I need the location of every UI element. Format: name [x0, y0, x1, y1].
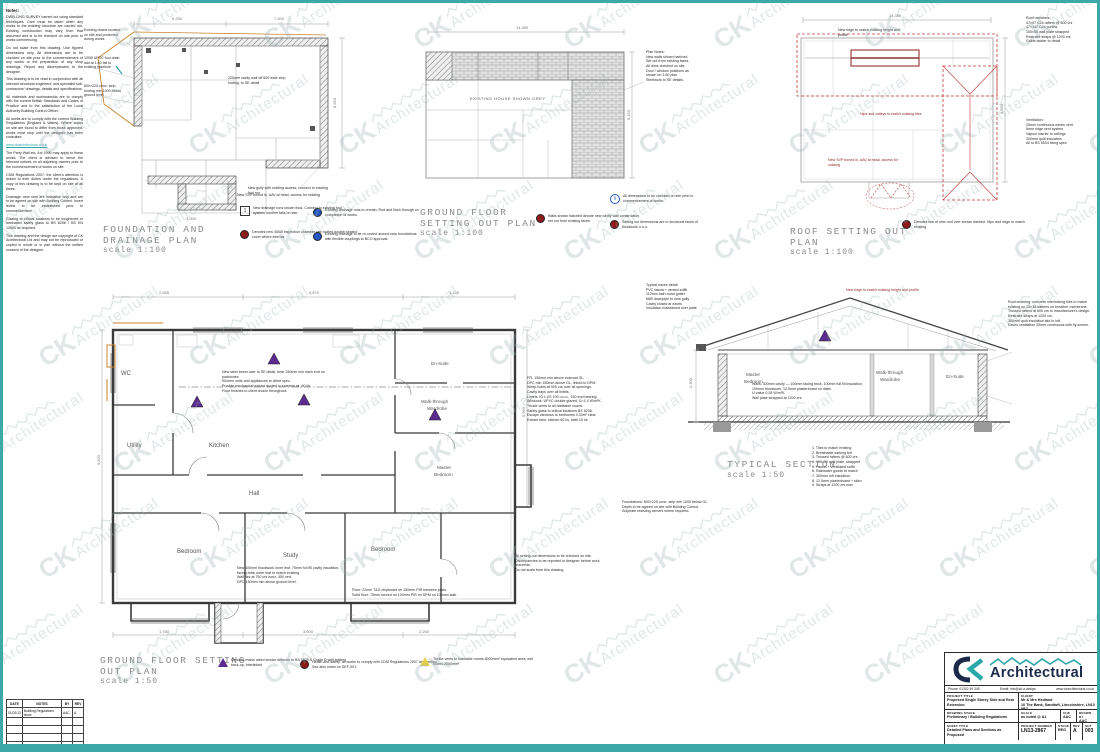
- sheet-title-cell: SHEET TITLE Detailed Plans and Sections …: [945, 723, 1019, 740]
- red-dot-icon: [902, 220, 911, 229]
- legend-existing-drainage: Existing drainage runs to remain. Rod an…: [313, 208, 421, 217]
- roof-plan-title: ROOF SETTING OUT PLAN: [790, 226, 907, 249]
- dim-label: 1,780: [159, 629, 170, 634]
- brand-name: Architectural: [990, 666, 1083, 681]
- legend-text: Trickle vents to habitable rooms 8000mm²…: [433, 657, 541, 666]
- ck-logo-icon: [950, 656, 986, 683]
- rev-rev: A: [73, 708, 84, 718]
- gf50-annotation: New steel beam over to SE detail, bear 1…: [222, 370, 334, 393]
- notes-heading: Notes:: [6, 8, 83, 13]
- legend-text: Denotes line of new roof over shown dash…: [914, 220, 1026, 229]
- red-dot-icon: [240, 230, 249, 239]
- room-label-master: Master: [437, 465, 452, 470]
- room-label-study: Study: [283, 553, 298, 559]
- section-title: TYPICAL SECTION: [727, 459, 837, 470]
- project-number-cell: PROJECT NUMBER LN13-2867: [1019, 723, 1056, 740]
- gf100-center-label: EXISTING HOUSE SHOWN GREY: [470, 96, 545, 101]
- dim-label: 8,550: [332, 97, 337, 108]
- number-stage-rev-sht-cells: PROJECT NUMBER LN13-2867 STAGE REG REV A…: [1019, 723, 1097, 740]
- watermark: CKArchitectural: [784, 487, 912, 583]
- revision-row-empty: [7, 718, 84, 726]
- room-label-bedroom1: Bedroom: [177, 549, 201, 555]
- revision-table: DATE NOTES BY REV 01/02/13 Building Regu…: [6, 699, 84, 750]
- dim-label: 3,120: [449, 290, 460, 295]
- room-label-master: Bedroom: [434, 472, 453, 477]
- revision-row-empty: [7, 726, 84, 734]
- room-label-ensuite: En-Suite: [431, 361, 449, 366]
- section-annotation-column: Roof covering: concrete interlocking til…: [1008, 300, 1096, 328]
- section-scale: scale 1:50: [727, 471, 785, 480]
- rev-cell: REV A: [1071, 723, 1083, 740]
- title-block-row1: PROJECT TITLE Proposed Single Storey Sid…: [945, 693, 1097, 710]
- dim-label: 14,350: [516, 25, 529, 30]
- room-label-wardrobe: Wardrobe: [427, 406, 447, 411]
- watermark: CKArchitectural: [0, 593, 87, 689]
- gf50-plan-drawing: WC Utility Kitchen En-Suite Walk-through…: [93, 283, 537, 659]
- gf50-annotation: All setting out dimensions to be checked…: [515, 554, 607, 573]
- note-paragraph: This drawing and the design are copyrigh…: [6, 234, 83, 253]
- rev-col-rev: REV: [73, 700, 84, 708]
- purple-triangle-icon: [218, 658, 228, 667]
- room-label-kitchen: Kitchen: [209, 443, 229, 449]
- drawing-stage-value: Preliminary / Building Regulations: [947, 715, 1016, 720]
- scale-value: as noted @ A1: [1021, 715, 1058, 720]
- gf50-annotation-column: FFL 150mm min above external GL. DPC min…: [527, 376, 613, 423]
- blue-dot-icon: [313, 208, 322, 217]
- section-label-wardrobe: Walk-through: [876, 370, 904, 375]
- legend-text: All dimensions to be checked on site pri…: [623, 194, 705, 203]
- roof-notes-column: Ventilation: 25mm continuous eaves vent …: [1026, 118, 1094, 146]
- note-paragraph: All materials and workmanship are to com…: [6, 95, 83, 114]
- gf100-plan-drawing: EXISTING HOUSE SHOWN GREY 14,350 9,150: [418, 20, 648, 204]
- sht-cell: SHT 003: [1083, 723, 1097, 740]
- company-logo: Architectural: [945, 653, 1097, 686]
- note-paragraph: DWELLING SURVEY carried out using standa…: [6, 15, 83, 43]
- foundation-annotation: Existing drains located on site and prot…: [84, 28, 124, 42]
- info-icon: i: [610, 194, 620, 204]
- project-number-value: LN13-2867: [1021, 728, 1053, 734]
- phone: Phone: 01302 49 345: [948, 687, 980, 691]
- roof-plan-scale: scale 1:100: [790, 248, 854, 257]
- legend-roof-line: Denotes line of new roof over shown dash…: [902, 220, 1026, 229]
- gf100-plan-scale: scale 1:100: [420, 229, 484, 238]
- foundation-plan-title: FOUNDATION AND DRAINAGE PLAN: [103, 224, 205, 247]
- note-paragraph: The Party Wall etc. Act 1996 may apply t…: [6, 151, 83, 170]
- room-label-bedroom2: Bedroom: [371, 547, 395, 553]
- general-notes-column: Notes: DWELLING SURVEY carried out using…: [6, 8, 83, 256]
- rev-notes: Building Regulations issue: [22, 708, 61, 718]
- revision-row-empty: [7, 742, 84, 750]
- client-value: Mr & Mrs Hedland 10 The Bank, Sandtoft, …: [1021, 698, 1095, 710]
- gf100-plan-title: GROUND FLOOR SETTING OUT PLAN: [420, 207, 537, 230]
- foundation-annotation: 600×225 conc. strip footing min 1000 bel…: [84, 84, 124, 98]
- drawn-by-cell: DRAWN BY AAC: [1077, 710, 1097, 723]
- title-block-row3: SHEET TITLE Detailed Plans and Sections …: [945, 723, 1097, 740]
- drawing-sheet: Notes: DWELLING SURVEY carried out using…: [0, 0, 1100, 752]
- note-paragraph: This drawing is to be read in conjunctio…: [6, 77, 83, 91]
- foundation-annotation: 225mm cavity wall off 600 wide strip foo…: [228, 76, 290, 85]
- foundation-plan-scale: scale 1:100: [103, 246, 167, 255]
- dim-label: 3,000: [186, 216, 197, 221]
- section-label-master: Master: [746, 372, 761, 377]
- numbered-box-icon: 1: [240, 206, 250, 216]
- red-dot-icon: [610, 220, 619, 229]
- title-block: Architectural Phone: 01302 49 345 Email:…: [944, 652, 1098, 746]
- eaves-detail-notes: Typical eaves detail: PVC fascia + vente…: [646, 283, 738, 311]
- dim-label: 4,870: [309, 290, 320, 295]
- room-label-wc: WC: [121, 371, 132, 377]
- dim-label: 2,250: [419, 629, 430, 634]
- watermark: CKArchitectural: [709, 593, 837, 689]
- roof-plan-drawing: 14,350 9,560: [793, 10, 1025, 228]
- note-paragraph: Glazing to critical locations to be toug…: [6, 217, 83, 231]
- project-title-value: Proposed Single Storey Side and Rear Ext…: [947, 698, 1016, 707]
- legend-text: Existing drainage to be re-routed around…: [325, 232, 421, 241]
- rev-col-by: BY: [62, 700, 73, 708]
- red-dot-icon: [536, 214, 545, 223]
- room-label-utility: Utility: [127, 443, 142, 449]
- legend-rerouted-drainage: Existing drainage to be re-routed around…: [313, 232, 421, 241]
- notes-web-link[interactable]: www.ckarchitectural.co.uk: [6, 143, 83, 148]
- revision-header-row: DATE NOTES BY REV: [7, 700, 84, 708]
- stage-cell: STAGE REG: [1056, 723, 1071, 740]
- rev-col-date: DATE: [7, 700, 23, 708]
- section-ridge-note: New ridge to match existing height and p…: [846, 288, 930, 293]
- dim-label: 2,655: [159, 290, 170, 295]
- revision-row: 01/02/13 Building Regulations issue AAC …: [7, 708, 84, 718]
- roof-annotation: Hips and valleys to match existing tiles: [860, 112, 926, 117]
- gf50-plan-scale: scale 1:50: [100, 677, 158, 686]
- roof-notes-column: Roof members: 47×97 C24 rafters @ 600 cr…: [1026, 16, 1094, 44]
- roof-annotation: New SVP boxed in, AAV at head, access fo…: [828, 158, 900, 167]
- rev-col-notes: NOTES: [22, 700, 61, 708]
- gf50-annotation: New 100mm blockwork inner leaf, 75mm ful…: [237, 566, 349, 585]
- foundation-annotation: New SVP boxed in, AAV at head, access fo…: [237, 193, 323, 198]
- dim-label: 9,820: [96, 454, 101, 465]
- dim-label: 14,350: [889, 13, 902, 18]
- section-annotation: Walls: 300mm cavity — 100mm facing brick…: [752, 382, 870, 401]
- watermark: CKArchitectural: [1009, 381, 1100, 477]
- sheet-title-value: Detailed Plans and Sections as Proposed: [947, 728, 1016, 737]
- foundation-annotation: 100Ø UPVC foul drain laid at 1:40 fall t…: [84, 56, 124, 70]
- note-paragraph: All works are to comply with the current…: [6, 117, 83, 140]
- legend-text: Existing drainage runs to remain. Rod an…: [325, 208, 421, 217]
- watermark: CKArchitectural: [1084, 487, 1100, 583]
- section-label-wardrobe: Wardrobe: [880, 377, 900, 382]
- roof-annotation: New ridge to match existing height and p…: [838, 28, 908, 37]
- legend-trickle-vents: Trickle vents to habitable rooms 8000mm²…: [420, 657, 541, 666]
- project-title-cell: PROJECT TITLE Proposed Single Storey Sid…: [945, 693, 1019, 710]
- note-paragraph: CDM Regulations 2007: the client's atten…: [6, 173, 83, 192]
- watermark: CKArchitectural: [0, 381, 87, 477]
- dim-label: 7,400: [274, 16, 285, 21]
- section-annotation: Foundations: 600×225 conc. strip min 100…: [622, 500, 730, 514]
- chk-cell: CHK AAC: [1061, 710, 1077, 723]
- watermark: CKArchitectural: [934, 487, 1062, 583]
- revision-row-empty: [7, 734, 84, 742]
- section-label-ensuite: En-Suite: [946, 374, 964, 379]
- drawn-by-label: DRAWN BY: [1079, 711, 1095, 719]
- room-label-wardrobe: Walk-through: [421, 399, 449, 404]
- scale-chk-drawn-cells: SCALE as noted @ A1 CHK AAC DRAWN BY AAC: [1019, 710, 1097, 723]
- gf100-plan-notes: Plan Notes: New walls shown hatched. Set…: [646, 50, 702, 83]
- rev-value: A: [1073, 728, 1080, 734]
- gf50-annotation: Floor: 22mm T&G chipboard on 150mm PIR b…: [352, 588, 458, 597]
- note-paragraph: Do not scale from this drawing. Use figu…: [6, 46, 83, 74]
- section-drawing: Master Bedroom Walk-through Wardrobe En-…: [618, 286, 1016, 458]
- chk-value: AAC: [1063, 715, 1074, 720]
- dim-label: 6,250: [172, 16, 183, 21]
- note-paragraph: Drainage: new runs are indicative only a…: [6, 195, 83, 214]
- dim-label: 5,960: [521, 406, 526, 417]
- drawing-stage-cell: DRAWING STAGE Preliminary / Building Reg…: [945, 710, 1019, 723]
- dim-label: 3,600: [303, 629, 314, 634]
- sht-value: 003: [1085, 728, 1095, 734]
- email[interactable]: Email: info@ck-a.design: [1000, 687, 1036, 691]
- dim-label: 2,400: [688, 377, 693, 388]
- room-label-hall: Hall: [249, 491, 259, 497]
- dim-label: 9,150: [626, 109, 631, 120]
- dim-label: 9,560: [999, 103, 1004, 114]
- yellow-triangle-icon: [420, 657, 430, 666]
- client-cell: CLIENT Mr & Mrs Hedland 10 The Bank, San…: [1019, 693, 1097, 710]
- brand-wordmark: Architectural: [990, 657, 1083, 681]
- red-dot-icon: [300, 660, 309, 669]
- stage-value: REG: [1058, 728, 1068, 733]
- blue-dot-icon: [313, 232, 322, 241]
- legend-text: Setting out dimensions are to structural…: [622, 220, 708, 229]
- title-block-row2: DRAWING STAGE Preliminary / Building Reg…: [945, 710, 1097, 723]
- website[interactable]: www.ckarchitectural.co.uk: [1056, 687, 1094, 691]
- watermark: CKArchitectural: [559, 593, 687, 689]
- legend-setting-out: Setting out dimensions are to structural…: [610, 220, 708, 229]
- rev-date: 01/02/13: [7, 708, 23, 718]
- legend-info: i All dimensions to be checked on site p…: [610, 194, 705, 204]
- contact-strip: Phone: 01302 49 345 Email: info@ck-a.des…: [945, 686, 1097, 693]
- scale-cell: SCALE as noted @ A1: [1019, 710, 1061, 723]
- rev-by: AAC: [62, 708, 73, 718]
